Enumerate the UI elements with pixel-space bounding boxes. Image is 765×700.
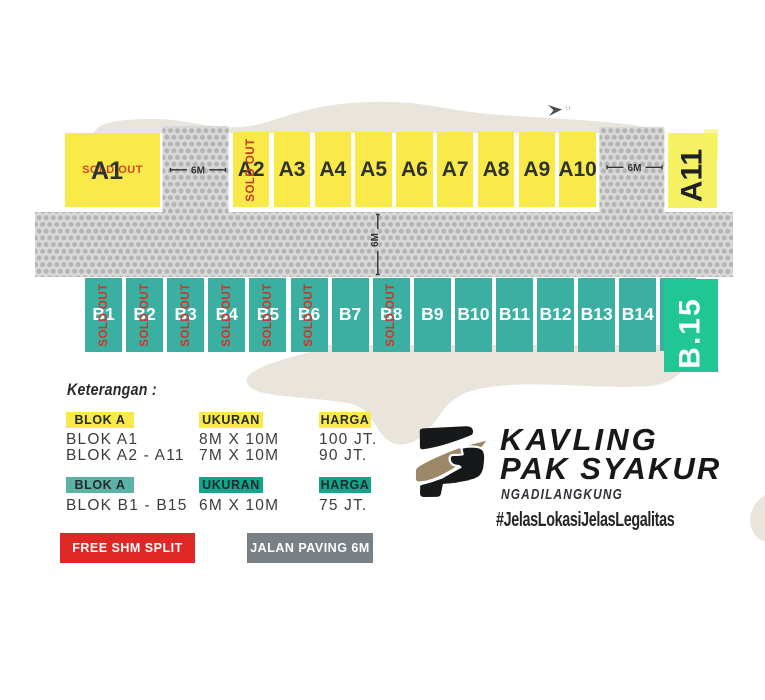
svg-text:6M: 6M: [628, 163, 642, 174]
svg-text:6M: 6M: [370, 233, 381, 247]
svg-text:U: U: [566, 106, 570, 112]
svg-text:6M: 6M: [191, 166, 205, 177]
